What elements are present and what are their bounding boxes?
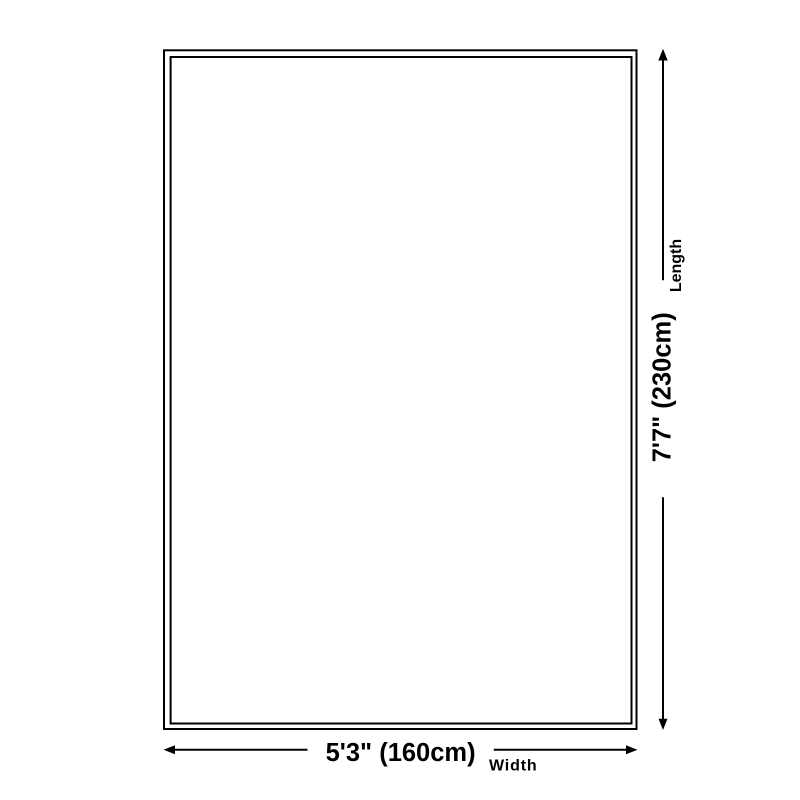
svg-text:7'7" (230cm): 7'7" (230cm)	[649, 312, 677, 462]
svg-text:Width: Width	[489, 758, 538, 775]
svg-text:5'3" (160cm): 5'3" (160cm)	[326, 739, 476, 767]
svg-text:Length: Length	[668, 239, 685, 292]
